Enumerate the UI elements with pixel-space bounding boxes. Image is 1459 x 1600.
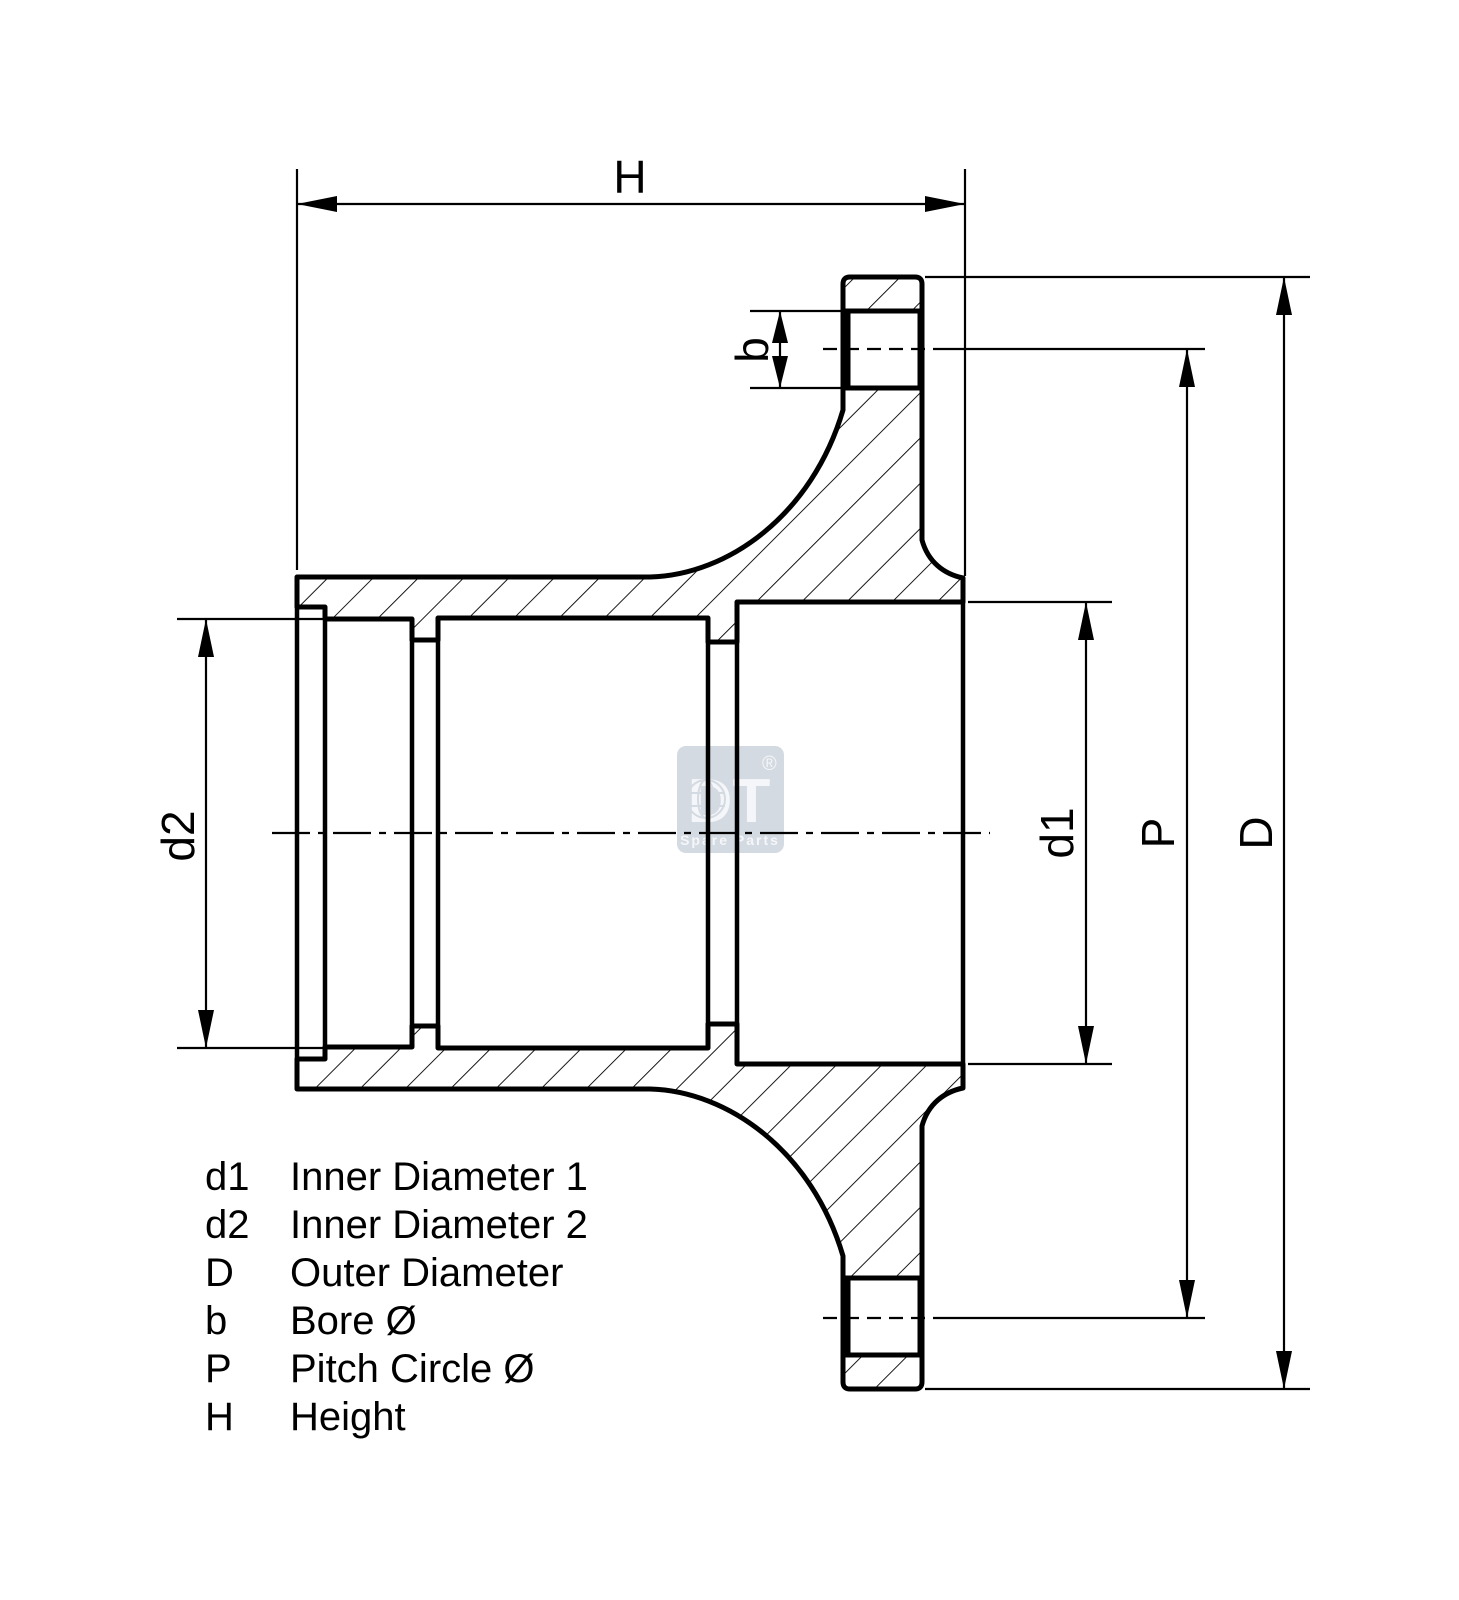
legend-row: d2 Inner Diameter 2 <box>205 1203 588 1247</box>
arrow-up-icon <box>1179 349 1195 387</box>
watermark-brand: DT <box>688 767 771 836</box>
label-outer-diameter: D <box>1230 816 1282 849</box>
legend-row: d1 Inner Diameter 1 <box>205 1155 588 1199</box>
arrow-down-icon <box>1179 1280 1195 1318</box>
wheel-hub-technical-drawing: DT ® Spare Parts <box>0 0 1459 1600</box>
watermark-logo: DT ® Spare Parts <box>677 746 784 853</box>
legend-symbol: P <box>205 1347 232 1391</box>
arrow-down-icon <box>1078 1026 1094 1064</box>
hub-section-view: DT ® Spare Parts <box>0 0 1459 1600</box>
legend-row: D Outer Diameter <box>205 1251 563 1295</box>
legend-description: Inner Diameter 1 <box>290 1155 588 1199</box>
arrow-left-icon <box>297 196 337 212</box>
legend-symbol: d1 <box>205 1155 250 1199</box>
legend-symbol: H <box>205 1395 234 1439</box>
legend: d1 Inner Diameter 1 d2 Inner Diameter 2 … <box>205 1155 588 1439</box>
label-inner-diameter-1: d1 <box>1031 807 1083 858</box>
legend-row: P Pitch Circle Ø <box>205 1347 535 1391</box>
legend-description: Outer Diameter <box>290 1251 563 1295</box>
label-pitch-circle: P <box>1132 818 1184 849</box>
arrow-up-icon <box>198 619 214 657</box>
legend-row: H Height <box>205 1395 406 1439</box>
legend-symbol: D <box>205 1251 234 1295</box>
watermark-registered-icon: ® <box>762 753 777 775</box>
legend-description: Bore Ø <box>290 1299 417 1343</box>
legend-row: b Bore Ø <box>205 1299 417 1343</box>
bolt-hole-bottom <box>848 1278 920 1355</box>
label-bore: b <box>726 337 778 363</box>
arrow-right-icon <box>925 196 965 212</box>
label-height: H <box>613 151 646 203</box>
arrow-down-icon <box>198 1010 214 1048</box>
arrow-up-icon <box>1276 277 1292 315</box>
watermark-tagline: Spare Parts <box>680 832 780 848</box>
label-inner-diameter-2: d2 <box>152 810 204 861</box>
arrow-up-icon <box>1078 602 1094 640</box>
legend-symbol: b <box>205 1299 227 1343</box>
legend-symbol: d2 <box>205 1203 250 1247</box>
legend-description: Inner Diameter 2 <box>290 1203 588 1247</box>
legend-description: Height <box>290 1395 406 1439</box>
legend-description: Pitch Circle Ø <box>290 1347 535 1391</box>
arrow-down-icon <box>1276 1351 1292 1389</box>
